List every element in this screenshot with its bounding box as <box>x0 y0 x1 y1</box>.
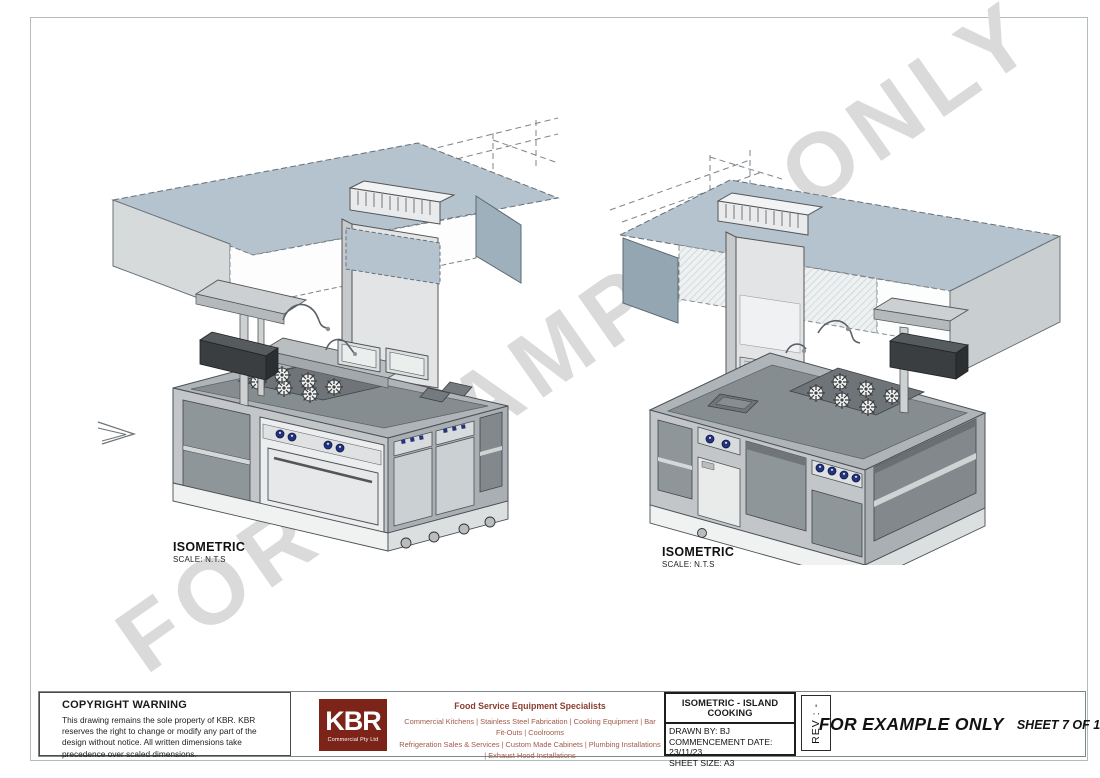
exhaust-canopy <box>113 143 558 310</box>
isometric-view-left: ISOMETRIC SCALE: N.T.S <box>88 88 568 558</box>
copyright-body: This drawing remains the sole property o… <box>62 715 280 760</box>
canopy-side-panel <box>623 238 678 323</box>
kbr-logo: KBR Commercial Pty Ltd <box>319 699 387 751</box>
example-only-area: FOR EXAMPLE ONLY SHEET 7 OF 10 <box>839 692 1087 756</box>
drawing-title: ISOMETRIC - ISLAND COOKING <box>666 694 794 724</box>
view-scale-left: SCALE: N.T.S <box>173 555 245 564</box>
view-title-left: ISOMETRIC <box>173 540 245 554</box>
kbr-logo-subtitle: Commercial Pty Ltd <box>319 737 387 743</box>
company-section: KBR Commercial Pty Ltd Food Service Equi… <box>291 692 664 756</box>
copyright-warning-box: COPYRIGHT WARNING This drawing remains t… <box>39 692 291 756</box>
services-line-2: Refrigeration Sales & Services | Custom … <box>399 739 661 762</box>
island-cooking-drawing-left <box>88 88 568 558</box>
drawing-sheet: FOR EXAMPLE ONLY <box>0 0 1100 778</box>
fryer-front <box>698 427 740 527</box>
commencement-date: COMMENCEMENT DATE: 23/11/23 <box>669 737 791 758</box>
services-line-1: Commercial Kitchens | Stainless Steel Fa… <box>399 716 661 739</box>
caster <box>698 529 707 538</box>
sheet-number-text: SHEET 7 OF 10 <box>1017 718 1100 732</box>
company-services: Food Service Equipment Specialists Comme… <box>399 701 661 762</box>
view-scale-right: SCALE: N.T.S <box>662 560 734 569</box>
isometric-view-right: ISOMETRIC SCALE: N.T.S <box>590 95 1070 565</box>
kbr-logo-text: KBR <box>319 708 387 735</box>
island-bench <box>650 353 985 565</box>
island-cooking-drawing-right <box>590 95 1070 565</box>
drawing-info-box: ISOMETRIC - ISLAND COOKING DRAWN BY: BJ … <box>664 692 796 756</box>
title-block-strip: COPYRIGHT WARNING This drawing remains t… <box>38 691 1086 757</box>
sheet-size: SHEET SIZE: A3 <box>669 758 791 769</box>
exhaust-canopy <box>620 180 1060 377</box>
for-example-only-text: FOR EXAMPLE ONLY <box>819 714 1004 735</box>
drawn-by: DRAWN BY: BJ <box>669 726 791 737</box>
range-knob-panel <box>812 460 862 557</box>
services-heading: Food Service Equipment Specialists <box>399 701 661 711</box>
view-title-right: ISOMETRIC <box>662 545 734 559</box>
copyright-heading: COPYRIGHT WARNING <box>62 699 280 711</box>
